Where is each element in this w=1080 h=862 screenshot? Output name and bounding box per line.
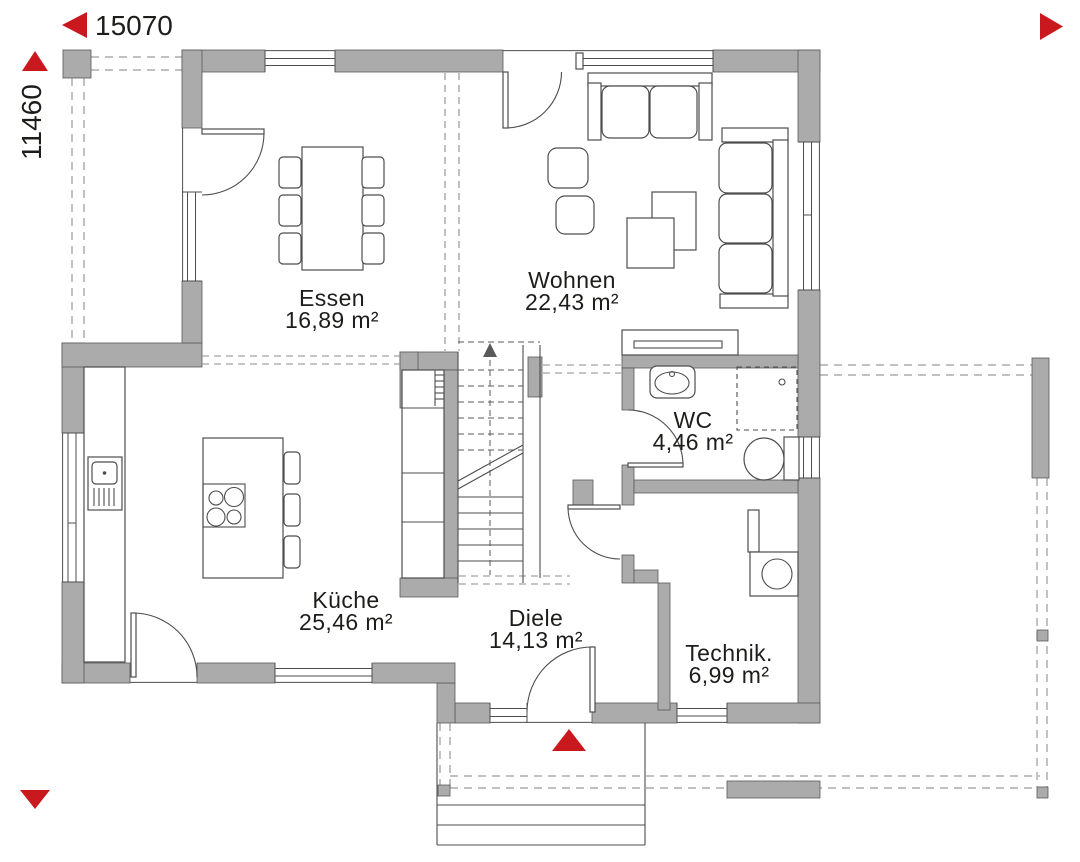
- side-table: [556, 196, 594, 234]
- window-technik-bottom: [677, 703, 727, 723]
- sofa-two-seat: [588, 73, 712, 140]
- dining-furniture: [279, 147, 384, 270]
- entrance-porch: [437, 723, 645, 845]
- terrace-door-glazing: [503, 50, 713, 72]
- bar-stool: [284, 536, 300, 568]
- room-area-diele: 14,13 m²: [489, 627, 583, 653]
- shower: [737, 367, 797, 430]
- room-area-wohnen: 22,43 m²: [525, 289, 619, 315]
- room-area-essen: 16,89 m²: [285, 307, 379, 333]
- window-essen-left: [182, 192, 202, 281]
- terrace-post: [1032, 358, 1049, 478]
- stair-direction-arrow-icon: [483, 343, 497, 357]
- bar-stool: [284, 494, 300, 526]
- kitchen-sink: [88, 457, 122, 510]
- door-technik: [568, 505, 620, 559]
- door-essen: [183, 128, 264, 195]
- carport-post: [63, 50, 91, 78]
- entrance-arrow-icon: [552, 729, 586, 751]
- washbasin: [650, 366, 695, 398]
- chair: [279, 157, 301, 188]
- window-wohnen-right: [798, 142, 820, 290]
- dimension-arrow-left-icon: [62, 12, 87, 38]
- window-essen-top: [265, 50, 335, 72]
- chair: [362, 157, 384, 188]
- chair: [362, 195, 384, 226]
- terrace-low-wall: [727, 781, 820, 798]
- chair: [362, 233, 384, 264]
- sofa-three-seat: [719, 128, 788, 308]
- dining-table: [302, 147, 363, 270]
- coffee-table: [627, 218, 674, 268]
- washing-machine: [750, 552, 798, 596]
- technik-unit: [748, 510, 759, 552]
- window-kueche-left: [62, 433, 84, 582]
- bar-stool: [284, 452, 300, 484]
- kitchen-counter: [84, 367, 125, 662]
- window-wc-right: [798, 437, 820, 478]
- window-entry-sidelight: [490, 703, 527, 723]
- toilet: [744, 437, 799, 480]
- kitchen-fixtures: [84, 367, 300, 662]
- window-kueche-bottom: [275, 663, 372, 683]
- door-terrace-wohnen: [503, 72, 562, 128]
- room-area-kueche: 25,46 m²: [299, 609, 393, 635]
- dimension-arrow-right-icon: [1040, 13, 1063, 40]
- room-area-wc: 4,46 m²: [653, 429, 734, 455]
- dimension-arrow-down-icon: [20, 790, 50, 809]
- floor-plan-page: Essen 16,89 m² Wohnen 22,43 m² WC 4,46 m…: [0, 0, 1080, 862]
- staircase: [402, 342, 540, 583]
- stair-shelf-cabinet: [402, 370, 444, 578]
- door-kueche: [130, 613, 197, 682]
- floor-plan-canvas: Essen 16,89 m² Wohnen 22,43 m² WC 4,46 m…: [0, 0, 1080, 862]
- sideboard: [622, 330, 738, 355]
- dimension-width-value: 15070: [95, 10, 173, 41]
- chair: [279, 195, 301, 226]
- door-entry: [527, 647, 595, 722]
- technik-fixtures: [748, 510, 798, 596]
- dimension-height-value: 11460: [16, 84, 47, 160]
- dimension-arrow-up-icon: [22, 51, 48, 71]
- room-area-technik: 6,99 m²: [689, 662, 770, 688]
- chair: [279, 233, 301, 264]
- side-table: [548, 148, 588, 188]
